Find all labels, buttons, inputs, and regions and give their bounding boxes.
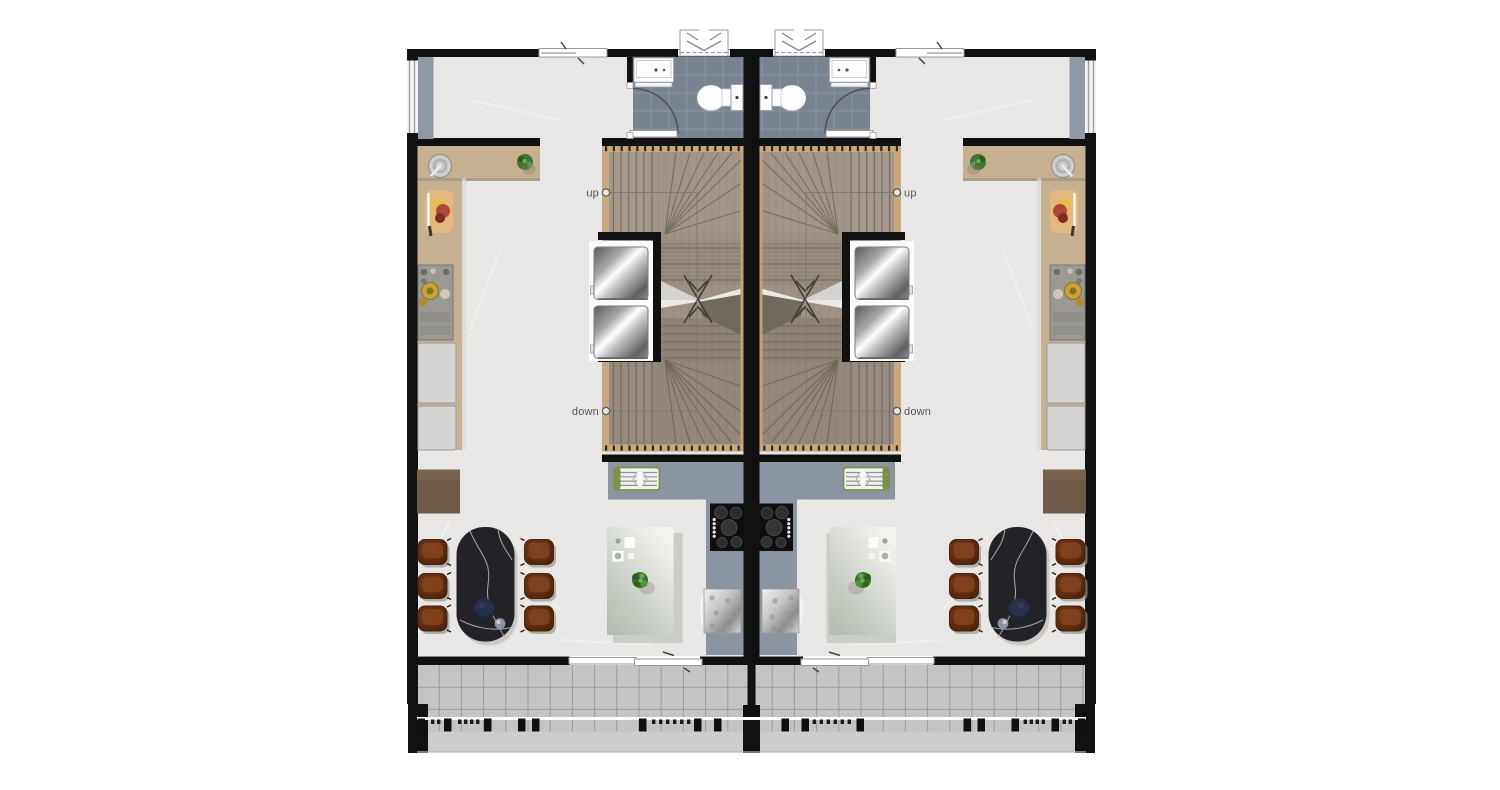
svg-text:down: down [904,406,931,418]
svg-text:up: up [586,188,599,200]
svg-text:down: down [572,406,599,418]
svg-text:up: up [904,188,917,200]
